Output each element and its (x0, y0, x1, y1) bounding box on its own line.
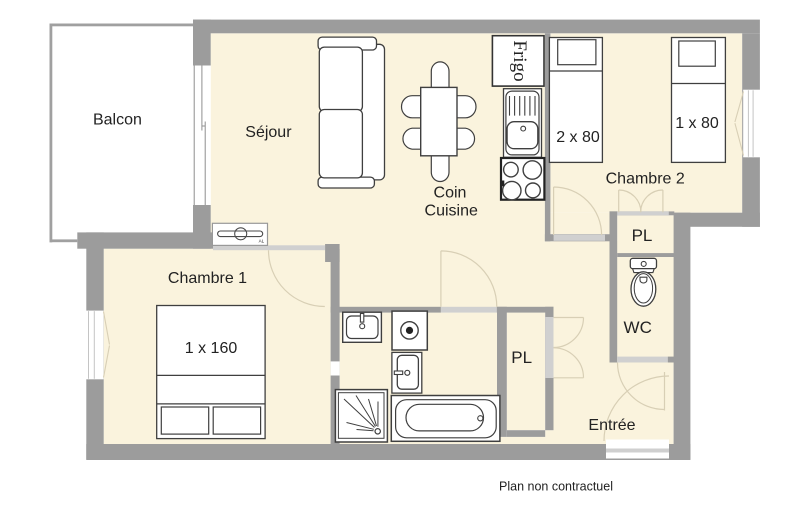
svg-text:1 x 160: 1 x 160 (185, 340, 238, 357)
svg-text:Frigo: Frigo (509, 40, 530, 81)
svg-text:AL: AL (259, 239, 265, 244)
svg-text:1 x 80: 1 x 80 (675, 115, 719, 132)
svg-text:WC: WC (624, 318, 652, 337)
svg-text:Chambre 2: Chambre 2 (606, 171, 685, 188)
svg-text:Séjour: Séjour (245, 124, 292, 141)
svg-text:Coin: Coin (434, 185, 467, 202)
svg-text:PL: PL (511, 348, 532, 367)
svg-text:PL: PL (632, 226, 653, 245)
svg-text:Balcon: Balcon (93, 112, 142, 129)
svg-text:Entrée: Entrée (588, 417, 635, 434)
svg-text:Plan non contractuel: Plan non contractuel (499, 479, 613, 493)
svg-text:Cuisine: Cuisine (425, 203, 478, 220)
svg-text:2 x 80: 2 x 80 (556, 129, 600, 146)
svg-text:Chambre 1: Chambre 1 (168, 270, 247, 287)
